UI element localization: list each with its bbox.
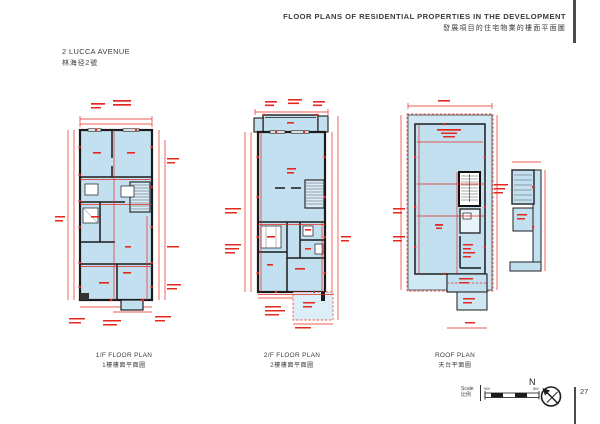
caption-roof-en: ROOF PLAN bbox=[390, 352, 520, 359]
brochure-page: FLOOR PLANS OF RESIDENTIAL PROPERTIES IN… bbox=[0, 0, 600, 424]
caption-2f-en: 2/F FLOOR PLAN bbox=[227, 352, 357, 359]
property-name-en: 2 LUCCA AVENUE bbox=[62, 47, 130, 56]
scale-label: Scale 比例 bbox=[461, 386, 474, 398]
scale-bar-icon bbox=[484, 391, 542, 401]
property-title: 2 LUCCA AVENUE 林海径2號 bbox=[62, 47, 130, 68]
caption-1f-en: 1/F FLOOR PLAN bbox=[59, 352, 189, 359]
page-number: 27 bbox=[580, 387, 588, 396]
roof-plan-drawing bbox=[393, 96, 553, 346]
header-title-en: FLOOR PLANS OF RESIDENTIAL PROPERTIES IN… bbox=[283, 12, 566, 21]
caption-1f-zh: 1樓樓面平面圖 bbox=[59, 360, 189, 369]
caption-roof-zh: 天台平面圖 bbox=[390, 360, 520, 369]
north-compass-icon bbox=[538, 383, 565, 410]
caption-2f: 2/F FLOOR PLAN 2樓樓面平面圖 bbox=[227, 352, 357, 369]
caption-2f-zh: 2樓樓面平面圖 bbox=[227, 360, 357, 369]
floor-plan-1f-drawing bbox=[55, 96, 185, 328]
page-header: FLOOR PLANS OF RESIDENTIAL PROPERTIES IN… bbox=[283, 12, 566, 33]
property-name-zh: 林海径2號 bbox=[62, 58, 130, 68]
compass-north-label: N bbox=[529, 377, 536, 387]
header-title-zh: 發展項目的住宅物業的樓面平面圖 bbox=[283, 23, 566, 33]
page-number-rule bbox=[574, 387, 576, 424]
caption-roof: ROOF PLAN 天台平面圖 bbox=[390, 352, 520, 369]
floor-plan-2f-drawing bbox=[225, 96, 370, 331]
scale-divider-rule bbox=[480, 385, 481, 401]
caption-1f: 1/F FLOOR PLAN 1樓樓面平面圖 bbox=[59, 352, 189, 369]
header-vertical-rule bbox=[573, 0, 576, 43]
scale-label-zh: 比例 bbox=[461, 392, 474, 398]
